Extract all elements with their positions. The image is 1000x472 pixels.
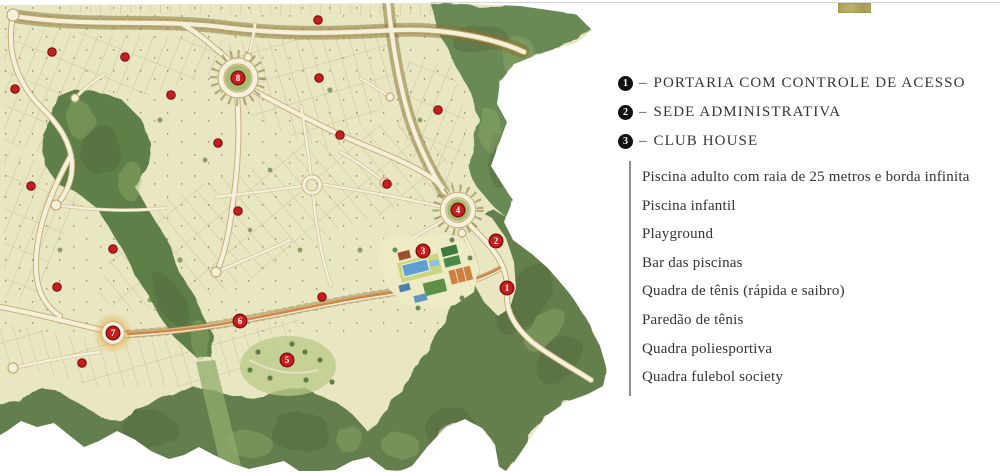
lot-dot [109, 245, 117, 253]
lot-dot [48, 48, 56, 56]
legend-item-sede: 2 – SEDE ADMINISTRATIVA [618, 98, 996, 127]
lot-dot [11, 85, 19, 93]
legend-number-badge: 1 [618, 76, 633, 91]
feature-item: Bar das piscinas [642, 249, 970, 278]
svg-text:8: 8 [236, 73, 241, 83]
legend-label: CLUB HOUSE [654, 133, 759, 150]
lot-dot [53, 283, 61, 291]
svg-text:1: 1 [505, 283, 510, 293]
club-house-feature-list: Piscina adulto com raia de 25 metros e b… [629, 161, 970, 396]
lot-dot [318, 293, 326, 301]
feature-item: Piscina adulto com raia de 25 metros e b… [642, 163, 970, 192]
lot-dot [434, 106, 442, 114]
feature-item: Piscina infantil [642, 192, 970, 221]
map-marker-4[interactable]: 4 [451, 203, 465, 217]
map-legend: 1 – PORTARIA COM CONTROLE DE ACESSO 2 – … [618, 69, 996, 156]
feature-item: Quadra poliesportiva [642, 335, 970, 364]
lot-dot [27, 182, 35, 190]
feature-item: Quadra fulebol society [642, 363, 970, 392]
legend-item-portaria: 1 – PORTARIA COM CONTROLE DE ACESSO [618, 69, 996, 98]
masterplan-map: 12345678 [0, 0, 620, 472]
legend-separator: – [639, 75, 647, 92]
lot-dot [214, 139, 222, 147]
lot-dot [121, 53, 129, 61]
legend-separator: – [639, 133, 647, 150]
map-marker-2[interactable]: 2 [489, 234, 503, 248]
svg-text:4: 4 [456, 205, 461, 215]
lot-dot [336, 131, 344, 139]
masterplan-map-svg: 12345678 [0, 0, 620, 472]
lot-dot [383, 180, 391, 188]
map-marker-6[interactable]: 6 [233, 314, 247, 328]
feature-item: Paredão de tênis [642, 306, 970, 335]
legend-item-clubhouse: 3 – CLUB HOUSE [618, 127, 996, 156]
legend-number-badge: 2 [618, 105, 633, 120]
svg-text:6: 6 [238, 316, 243, 326]
feature-item: Quadra de tênis (rápida e saibro) [642, 277, 970, 306]
legend-label: SEDE ADMINISTRATIVA [654, 104, 842, 121]
legend-label: PORTARIA COM CONTROLE DE ACESSO [654, 75, 966, 92]
lot-dot [234, 207, 242, 215]
svg-text:5: 5 [285, 355, 290, 365]
map-marker-8[interactable]: 8 [231, 71, 245, 85]
legend-number-badge: 3 [618, 134, 633, 149]
svg-text:3: 3 [421, 246, 426, 256]
roundabout-small [304, 177, 320, 193]
feature-item: Playground [642, 220, 970, 249]
lot-dot [78, 359, 86, 367]
map-marker-3[interactable]: 3 [416, 244, 430, 258]
masterplan-page: 12345678 1 – PORTARIA COM CONTROLE DE AC… [0, 0, 1000, 472]
map-marker-5[interactable]: 5 [280, 353, 294, 367]
legend-separator: – [639, 104, 647, 121]
lot-dot [167, 91, 175, 99]
svg-text:7: 7 [111, 328, 116, 338]
map-marker-1[interactable]: 1 [500, 281, 514, 295]
svg-text:2: 2 [494, 236, 499, 246]
lot-dot [314, 16, 322, 24]
map-marker-7[interactable]: 7 [106, 326, 120, 340]
lot-dot [315, 74, 323, 82]
partial-logo [838, 3, 871, 13]
